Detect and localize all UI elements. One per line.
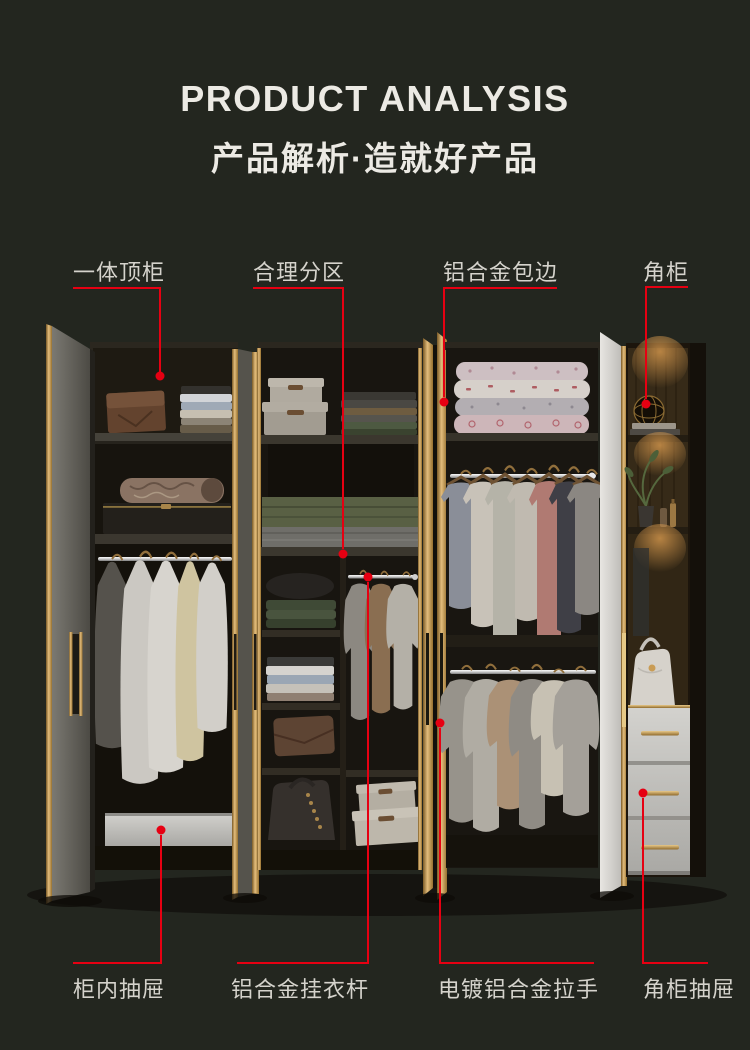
middle-hanging-rod <box>348 575 414 579</box>
callout-label-corner-drawer: 角柜抽屉 <box>643 972 735 1004</box>
drawer-handle-bottom <box>641 845 679 850</box>
right-wardrobe-unit <box>439 342 607 868</box>
middle-open-unit <box>257 342 425 870</box>
corner-drawer-stack <box>628 705 690 875</box>
callout-dot <box>156 372 165 381</box>
middle-door-edges <box>232 349 259 900</box>
corner-cabinet <box>623 336 706 877</box>
callout-dot <box>157 826 166 835</box>
callout-dot <box>639 789 648 798</box>
callout-label-hanging-rod: 铝合金挂衣杆 <box>231 972 369 1004</box>
white-storage-boxes <box>350 781 424 847</box>
interior-drawer <box>105 813 233 846</box>
black-storage-box <box>103 503 231 534</box>
lower-hanging-rod <box>450 670 596 674</box>
green-blanket <box>262 497 420 527</box>
folded-clothes-stack <box>180 386 232 433</box>
callout-dot <box>642 400 651 409</box>
callout-dot <box>440 398 449 407</box>
product-analysis-page: PRODUCT ANALYSIS 产品解析·造就好产品 <box>0 0 750 1050</box>
callout-label-plated-handle: 电镀铝合金拉手 <box>438 972 599 1004</box>
callout-label-aluminum-edge: 铝合金包边 <box>443 255 558 287</box>
gray-blanket <box>262 527 420 547</box>
middle-left-column <box>262 573 340 840</box>
right-unit-left-door-edge <box>423 332 447 900</box>
left-open-door <box>46 324 95 904</box>
middle-folded-stack <box>341 392 417 435</box>
callout-dot <box>436 719 445 728</box>
wardrobe-product-photo <box>0 0 750 1050</box>
drawer-handle-top <box>641 731 679 736</box>
callout-label-corner-cabinet: 角柜 <box>643 255 689 287</box>
rolled-blanket <box>120 478 224 503</box>
callout-label-top-cabinet: 一体顶柜 <box>73 255 165 287</box>
hanging-sweaters <box>439 665 600 832</box>
right-open-door <box>600 332 627 898</box>
callout-label-inner-drawer: 柜内抽屉 <box>73 972 165 1004</box>
callout-dot <box>339 550 348 559</box>
callout-dot <box>364 573 373 582</box>
callout-label-zoning: 合理分区 <box>253 255 345 287</box>
left-wardrobe-unit <box>90 342 238 870</box>
storage-boxes <box>262 378 328 435</box>
wire-ball-decor <box>634 396 664 426</box>
folded-quilts <box>454 362 590 434</box>
door-handle <box>69 632 83 716</box>
